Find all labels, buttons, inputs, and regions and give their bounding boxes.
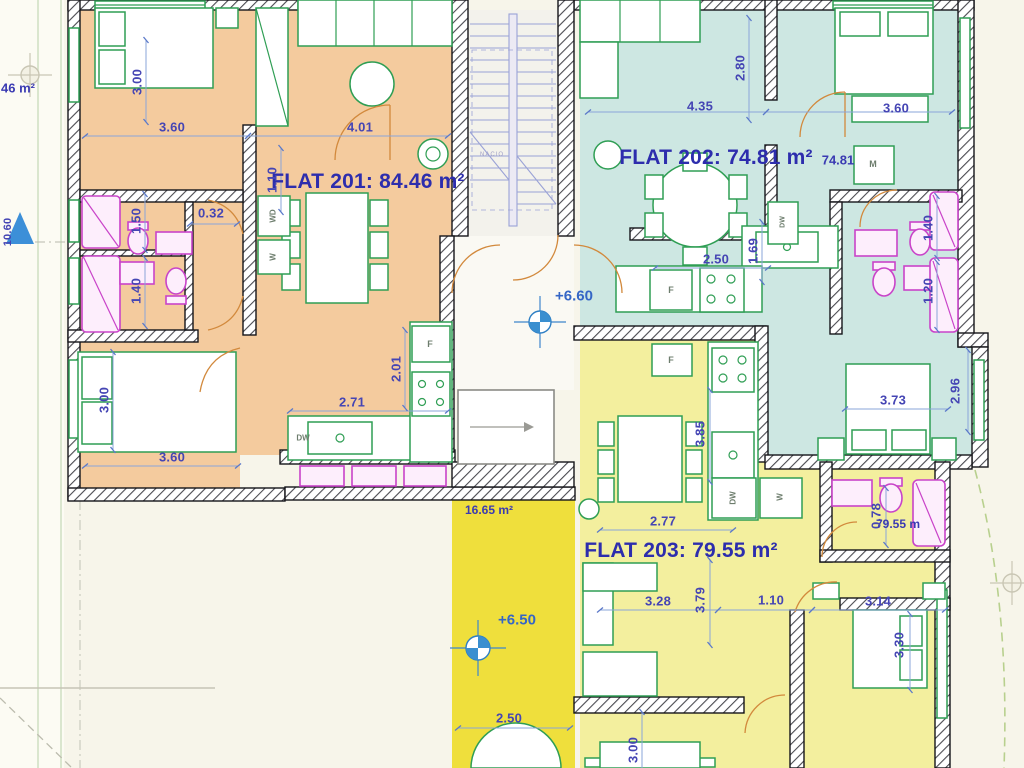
floor-plan: FLAT 201: 84.46 m² FLAT 202: 74.81 m² FL…: [0, 0, 1024, 768]
balcony-planters: [300, 466, 446, 486]
elevator: [458, 390, 554, 464]
floor-plan-drawing: [0, 0, 1024, 768]
